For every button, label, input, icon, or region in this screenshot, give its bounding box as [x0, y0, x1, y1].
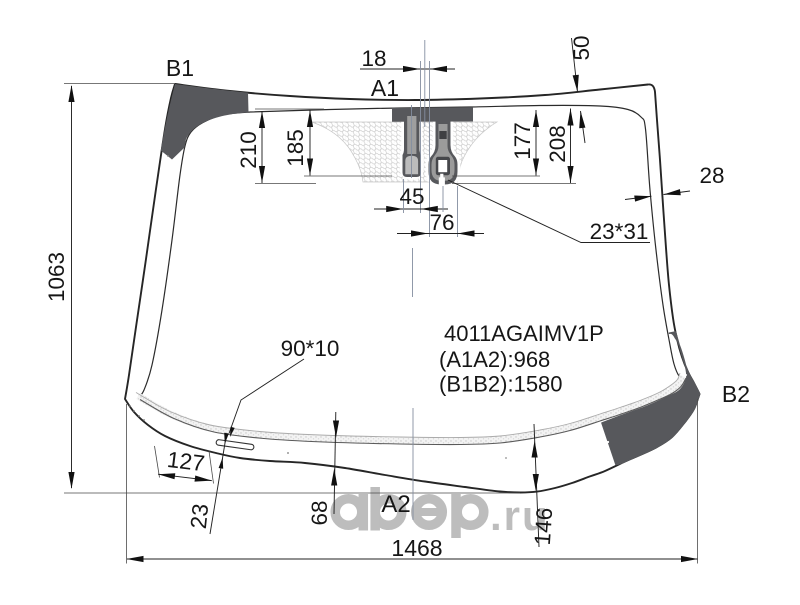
svg-text:(B1B2):1580: (B1B2):1580 — [439, 372, 563, 397]
svg-text:B2: B2 — [722, 381, 750, 407]
svg-text:177: 177 — [510, 122, 535, 160]
svg-text:18: 18 — [361, 46, 386, 71]
svg-text:28: 28 — [699, 163, 724, 188]
svg-text:208: 208 — [545, 125, 570, 163]
svg-text:50: 50 — [569, 35, 594, 60]
svg-text:B1: B1 — [166, 55, 194, 81]
svg-text:4011AGAIMV1P: 4011AGAIMV1P — [444, 321, 604, 346]
svg-text:(A1A2):968: (A1A2):968 — [439, 347, 550, 372]
svg-text:23*31: 23*31 — [590, 219, 649, 244]
svg-text:23: 23 — [186, 502, 213, 530]
svg-text:68: 68 — [307, 500, 332, 525]
svg-text:210: 210 — [236, 131, 261, 169]
svg-text:127: 127 — [166, 447, 206, 476]
svg-text:A2: A2 — [381, 491, 410, 518]
svg-text:45: 45 — [399, 184, 424, 209]
svg-text:185: 185 — [283, 129, 308, 167]
svg-text:1468: 1468 — [391, 535, 442, 561]
svg-text:76: 76 — [429, 210, 454, 235]
svg-text:1063: 1063 — [44, 252, 69, 302]
svg-text:146: 146 — [530, 507, 558, 546]
svg-text:90*10: 90*10 — [281, 336, 340, 361]
svg-text:A1: A1 — [371, 75, 399, 101]
